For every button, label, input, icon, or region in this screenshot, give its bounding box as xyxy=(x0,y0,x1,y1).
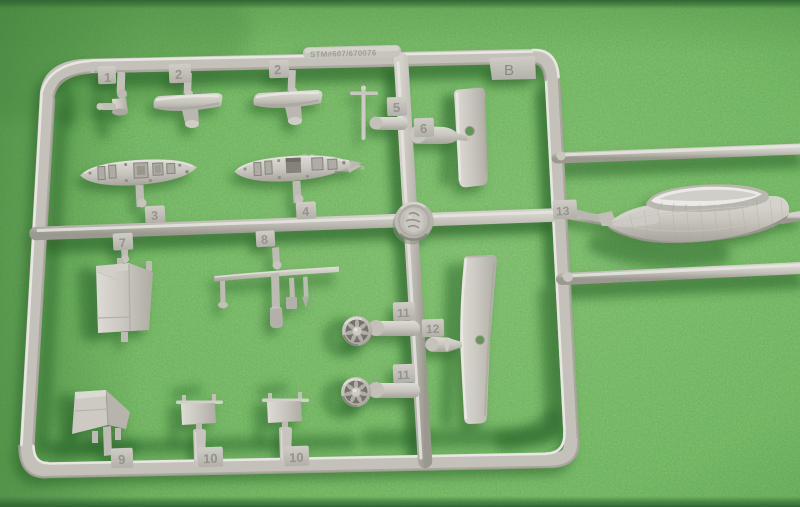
svg-text:4: 4 xyxy=(302,205,310,219)
svg-text:B: B xyxy=(504,62,514,79)
svg-text:10: 10 xyxy=(203,451,218,466)
svg-text:STM#607/670076: STM#607/670076 xyxy=(310,48,377,59)
svg-text:1: 1 xyxy=(104,70,112,85)
svg-text:11: 11 xyxy=(397,368,410,382)
svg-text:3: 3 xyxy=(151,209,159,223)
svg-text:6: 6 xyxy=(420,121,428,136)
svg-text:7: 7 xyxy=(119,236,127,250)
svg-text:12: 12 xyxy=(426,322,440,336)
svg-text:11: 11 xyxy=(397,306,410,320)
svg-text:2: 2 xyxy=(175,67,183,82)
svg-text:8: 8 xyxy=(261,233,269,247)
svg-text:13: 13 xyxy=(556,204,570,219)
svg-text:9: 9 xyxy=(118,452,126,467)
svg-text:5: 5 xyxy=(393,100,401,115)
svg-text:2: 2 xyxy=(274,62,282,77)
svg-text:10: 10 xyxy=(289,450,304,465)
